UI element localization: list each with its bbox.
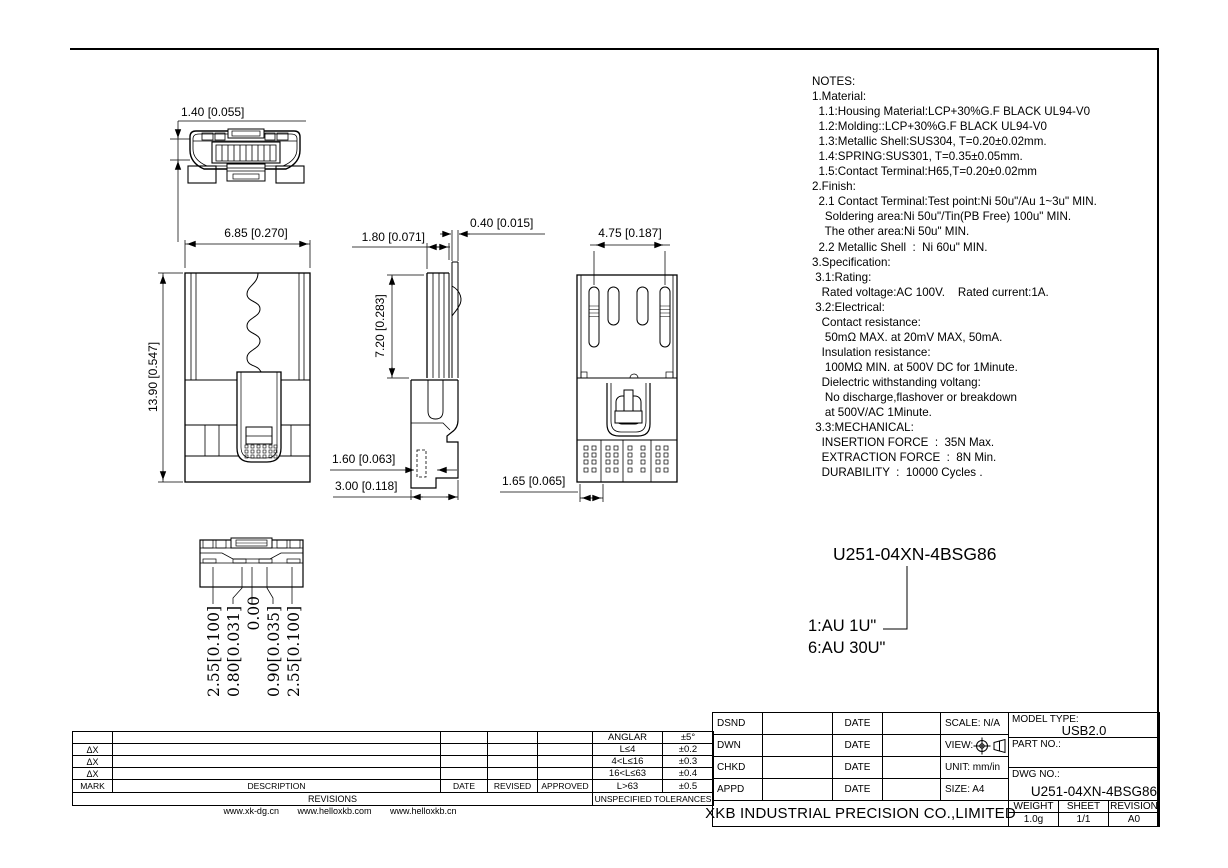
dsnd-name-cell	[763, 713, 833, 735]
front-dimension-lines	[158, 240, 310, 482]
notes-line: INSERTION FORCE : 35N Max.	[812, 435, 1097, 450]
notes-line: Contact resistance:	[812, 315, 1097, 330]
part-no-label: PART NO.:	[1012, 739, 1061, 750]
notes-line: DURABILITY : 10000 Cycles .	[812, 465, 1097, 480]
notes-line: 3.3:MECHANICAL:	[812, 420, 1097, 435]
notes-line: EXTRACTION FORCE : 8N Min.	[812, 450, 1097, 465]
view-label: VIEW:	[945, 740, 973, 751]
chkd-name-cell	[763, 757, 833, 779]
third-angle-projection-icon	[971, 737, 1009, 755]
revisions-header-mark: MARK	[73, 780, 113, 793]
revision-date-cell	[441, 732, 488, 744]
part-number-callout: U251-04XN-4BSG86	[833, 544, 996, 565]
role-dsnd: DSND	[713, 713, 763, 735]
tolerance-value: ±0.5	[663, 780, 713, 793]
revision-approved-cell	[538, 768, 593, 780]
part-no-cell: PART NO.:	[1009, 738, 1159, 768]
tolerance-value: ±5°	[663, 732, 713, 744]
appd-date-cell	[883, 779, 941, 801]
notes-line: Soldering area:Ni 50u"/Tin(PB Free) 100u…	[812, 209, 1097, 224]
footer-link: www.helloxkb.com	[297, 806, 371, 816]
notes-line: The other area:Ni 50u" MIN.	[812, 224, 1097, 239]
dim-spring-thickness: 0.40 [0.015]	[470, 216, 533, 230]
notes-line: No discharge,flashover or breakdown	[812, 390, 1097, 405]
notes-line: Insulation resistance:	[812, 345, 1097, 360]
notes-line: Dielectric withstanding voltang:	[812, 375, 1097, 390]
dwn-name-cell	[763, 735, 833, 757]
notes-line: 3.1:Rating:	[812, 270, 1097, 285]
weight-label: WEIGHT	[1009, 801, 1059, 813]
revisions-header-description: DESCRIPTION	[113, 780, 441, 793]
face-view	[188, 129, 304, 183]
dim-slot-span: 4.75 [0.187]	[590, 226, 670, 240]
dim-bottom-offset-3: 0.00	[245, 596, 263, 631]
footer-link: www.xk-dg.cn	[223, 806, 279, 816]
role-appd: APPD	[713, 779, 763, 801]
notes-line: 1.5:Contact Terminal:H65,T=0.20±0.02mm	[812, 164, 1097, 179]
rotated-dimension-labels: 13.90 [0.547] 7.20 [0.283] 2.55[0.100] 0…	[146, 294, 387, 697]
notes-line: 3.Specification:	[812, 255, 1097, 270]
revision-mark-cell: ΔX	[73, 768, 113, 780]
revisions-table: ANGLAR ±5° ΔX L≤4 ±0.2 ΔX 4<L≤16 ±0.3 ΔX…	[72, 731, 714, 806]
revision-description-cell	[113, 768, 441, 780]
model-type-value: USB2.0	[1009, 723, 1159, 738]
notes-line: 1.3:Metallic Shell:SUS304, T=0.20±0.02mm…	[812, 134, 1097, 149]
notes-line: 50mΩ MAX. at 20mV MAX, 50mA.	[812, 330, 1097, 345]
notes-line: 2.2 Metallic Shell : Ni 60u" MIN.	[812, 240, 1097, 255]
front-view	[185, 273, 310, 482]
sheet-label: SHEET	[1059, 801, 1109, 813]
dim-front-width: 6.85 [0.270]	[202, 226, 310, 240]
sheet-value: 1/1	[1059, 813, 1109, 826]
tolerance-range: L≤4	[593, 744, 663, 756]
revisions-footer: REVISIONS	[73, 793, 593, 805]
role-chkd: CHKD	[713, 757, 763, 779]
notes-line: at 500V/AC 1Minute.	[812, 405, 1097, 420]
tolerance-range: 16<L≤63	[593, 768, 663, 780]
title-block: DSND DATE SCALE: N/A DWN DATE VIEW:	[712, 712, 1160, 827]
back-view	[577, 275, 677, 482]
revision-revised-cell	[488, 744, 538, 756]
date-label: DATE	[833, 713, 883, 735]
unit-cell: UNIT: mm/in	[941, 757, 1009, 779]
dim-bottom-offset-2: 0.80[0.031]	[225, 606, 243, 697]
notes-line: Rated voltage:AC 100V. Rated current:1A.	[812, 285, 1097, 300]
plating-code-1: 1:AU 1U"	[808, 617, 876, 636]
tolerance-range: L>63	[593, 780, 663, 793]
revision-description-cell	[113, 744, 441, 756]
plating-code-6: 6:AU 30U"	[808, 639, 885, 658]
dwg-no-label: DWG NO.:	[1012, 769, 1060, 780]
notes-line: 1.2:Molding::LCP+30%G.F BLACK UL94-V0	[812, 119, 1097, 134]
callout-leader	[883, 566, 907, 629]
tolerance-value: ±0.2	[663, 744, 713, 756]
notes-block: NOTES: 1.Material: 1.1:Housing Material:…	[812, 74, 1097, 480]
appd-name-cell	[763, 779, 833, 801]
notes-line: 1.4:SPRING:SUS301, T=0.35±0.05mm.	[812, 149, 1097, 164]
notes-line: 1.1:Housing Material:LCP+30%G.F BLACK UL…	[812, 104, 1097, 119]
dim-side-top-width: 1.80 [0.071]	[350, 230, 425, 244]
dim-bottom-offset-4: 0.90[0.035]	[265, 606, 283, 697]
revision-approved-cell	[538, 756, 593, 768]
tolerance-range: ANGLAR	[593, 732, 663, 744]
dim-bottom-offset-5: 2.55[0.100]	[285, 606, 303, 697]
date-label: DATE	[833, 779, 883, 801]
notes-line: 2.1 Contact Terminal:Test point:Ni 50u"/…	[812, 194, 1097, 209]
revision-approved-cell	[538, 732, 593, 744]
dim-bottom-offset-1: 2.55[0.100]	[205, 606, 223, 697]
dim-shell-height: 7.20 [0.283]	[373, 294, 387, 357]
revision-revised-cell	[488, 768, 538, 780]
dim-foot-width: 1.60 [0.063]	[332, 452, 395, 466]
revision-date-cell	[441, 756, 488, 768]
revision-revised-cell	[488, 756, 538, 768]
revisions-header-revised: REVISED	[488, 780, 538, 793]
date-label: DATE	[833, 735, 883, 757]
dwn-date-cell	[883, 735, 941, 757]
revision-label: REVISION	[1109, 801, 1159, 813]
notes-line: 3.2:Electrical:	[812, 300, 1097, 315]
revision-date-cell	[441, 768, 488, 780]
revision-mark-cell: ΔX	[73, 744, 113, 756]
dim-pad-pitch: 1.65 [0.065]	[502, 474, 565, 488]
notes-line: 100MΩ MIN. at 500V DC for 1Minute.	[812, 360, 1097, 375]
title-block-right-column: MODEL TYPE: USB2.0 PART NO.: DWG NO.: U2…	[1009, 713, 1159, 826]
dsnd-date-cell	[883, 713, 941, 735]
revisions-header-date: DATE	[441, 780, 488, 793]
footer-links: www.xk-dg.cn www.helloxkb.com www.hellox…	[160, 806, 520, 816]
dim-front-height: 13.90 [0.547]	[146, 342, 160, 412]
revision-mark-cell: ΔX	[73, 756, 113, 768]
scale-cell: SCALE: N/A	[941, 713, 1009, 735]
view-cell: VIEW:	[941, 735, 1009, 757]
revision-mark-cell	[73, 732, 113, 744]
notes-line: NOTES:	[812, 74, 1097, 89]
dim-base-width: 3.00 [0.118]	[335, 479, 398, 493]
revision-value: A0	[1109, 813, 1159, 826]
tolerance-value: ±0.4	[663, 768, 713, 780]
side-view	[411, 262, 461, 488]
role-dwn: DWN	[713, 735, 763, 757]
chkd-date-cell	[883, 757, 941, 779]
bottom-view	[200, 538, 303, 587]
size-cell: SIZE: A4	[941, 779, 1009, 801]
notes-line: 1.Material:	[812, 89, 1097, 104]
signature-grid: DSND DATE SCALE: N/A DWN DATE VIEW:	[713, 713, 1009, 801]
tolerance-range: 4<L≤16	[593, 756, 663, 768]
model-type-cell: MODEL TYPE: USB2.0	[1009, 713, 1159, 738]
weight-sheet-revision-grid: WEIGHT SHEET REVISION 1.0g 1/1 A0	[1009, 801, 1159, 826]
revision-date-cell	[441, 744, 488, 756]
company-name: XKB INDUSTRIAL PRECISION CO.,LIMITED	[713, 801, 1009, 826]
weight-value: 1.0g	[1009, 813, 1059, 826]
revision-description-cell	[113, 756, 441, 768]
drawing-sheet: 13.90 [0.547] 7.20 [0.283] 2.55[0.100] 0…	[0, 0, 1228, 868]
revision-description-cell	[113, 732, 441, 744]
notes-line: 2.Finish:	[812, 179, 1097, 194]
date-label: DATE	[833, 757, 883, 779]
back-dimension-lines	[500, 245, 670, 502]
revisions-header-approved: APPROVED	[538, 780, 593, 793]
revision-approved-cell	[538, 744, 593, 756]
dwg-no-cell: DWG NO.: U251-04XN-4BSG86	[1009, 768, 1159, 801]
footer-link: www.helloxkb.cn	[390, 806, 457, 816]
dim-face-width: 1.40 [0.055]	[181, 105, 244, 119]
tolerances-footer: UNSPECIFIED TOLERANCES	[593, 793, 713, 805]
revision-revised-cell	[488, 732, 538, 744]
tolerance-value: ±0.3	[663, 756, 713, 768]
dwg-no-value: U251-04XN-4BSG86	[1031, 784, 1157, 799]
